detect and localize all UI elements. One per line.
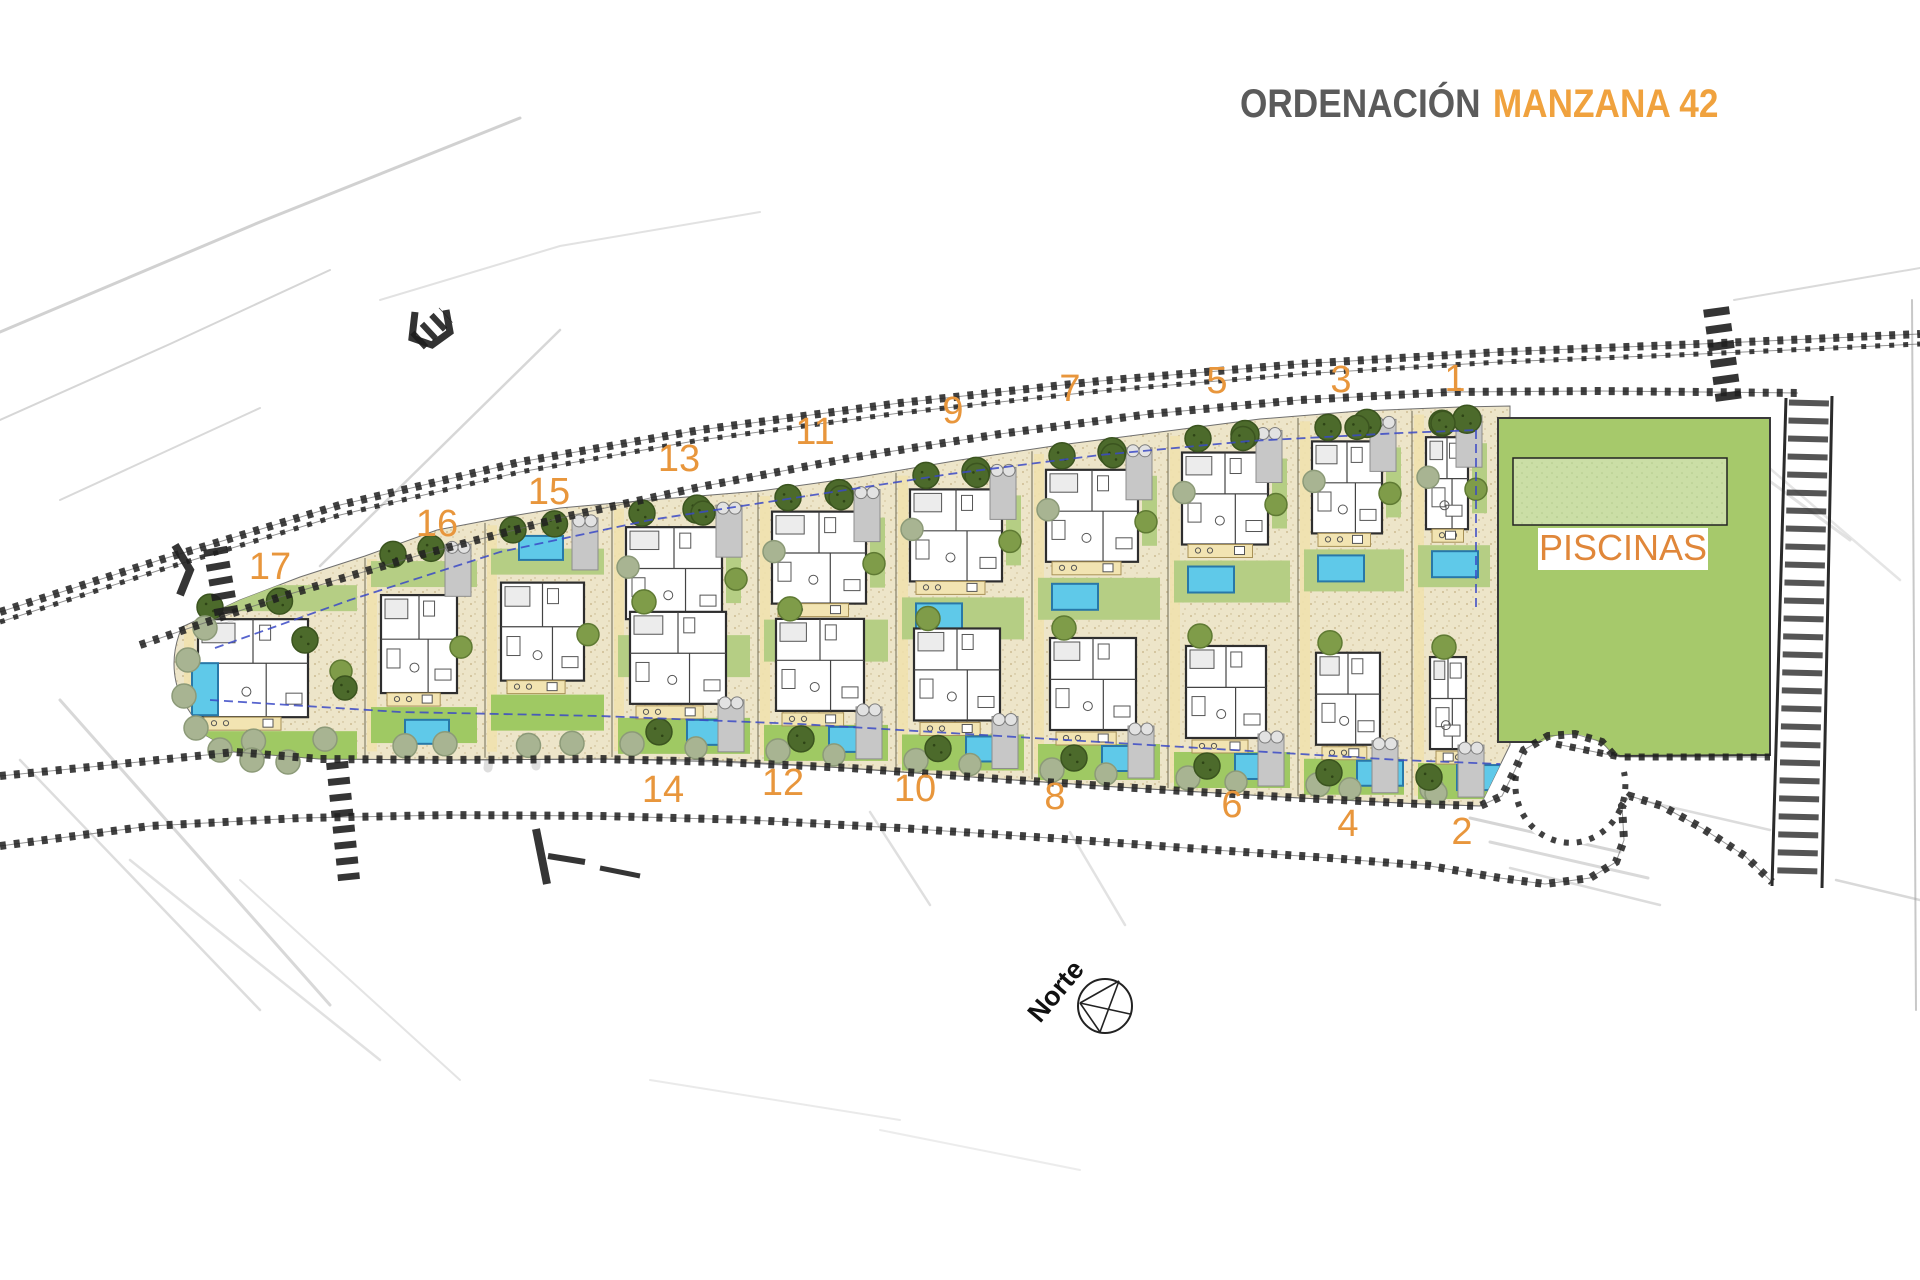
- plot-number-16: 16: [416, 503, 458, 545]
- plot-number-15: 15: [528, 471, 570, 513]
- piscinas-area: [1498, 418, 1770, 846]
- title-main: MANZANA 42: [1493, 82, 1719, 126]
- plot-number-10: 10: [894, 768, 936, 810]
- plot-number-2: 2: [1451, 811, 1472, 853]
- stairs-path: [1772, 396, 1832, 888]
- plot-number-12: 12: [762, 762, 804, 804]
- north-compass: Norte: [1022, 955, 1132, 1033]
- plot-number-8: 8: [1044, 776, 1065, 818]
- piscinas-label: PISCINAS: [1539, 527, 1707, 568]
- plot-number-4: 4: [1337, 803, 1358, 845]
- plot-number-13: 13: [658, 438, 700, 480]
- plot-number-7: 7: [1059, 368, 1080, 410]
- page-title: ORDENACIÓNMANZANA 42: [1240, 82, 1718, 127]
- plot-number-14: 14: [642, 769, 684, 811]
- plot-number-17: 17: [249, 546, 291, 588]
- plot-number-3: 3: [1330, 359, 1351, 401]
- plot-number-5: 5: [1206, 360, 1227, 402]
- plots-layer: [184, 411, 1503, 802]
- plot-number-6: 6: [1221, 784, 1242, 826]
- piscinas-pool-rect: [1513, 458, 1727, 525]
- site-plan-page: 1234567891011121314151617PISCINASNorte O…: [0, 0, 1920, 1280]
- title-prefix: ORDENACIÓN: [1240, 82, 1481, 126]
- site-plan-svg: 1234567891011121314151617PISCINASNorte: [0, 0, 1920, 1280]
- plot-number-11: 11: [795, 411, 834, 453]
- plot-number-9: 9: [942, 390, 963, 432]
- plot-number-1: 1: [1444, 358, 1465, 400]
